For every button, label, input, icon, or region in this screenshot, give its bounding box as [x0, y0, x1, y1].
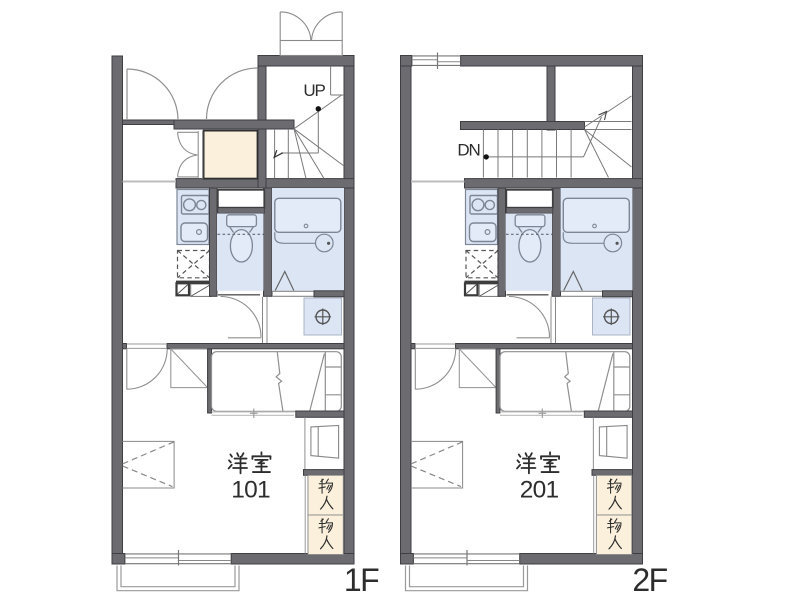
- svg-text:DN: DN: [457, 141, 479, 160]
- svg-text:101: 101: [231, 476, 270, 503]
- svg-text:2F: 2F: [632, 562, 667, 598]
- svg-text:1F: 1F: [344, 562, 379, 598]
- svg-text:UP: UP: [303, 81, 325, 100]
- svg-text:201: 201: [520, 476, 559, 503]
